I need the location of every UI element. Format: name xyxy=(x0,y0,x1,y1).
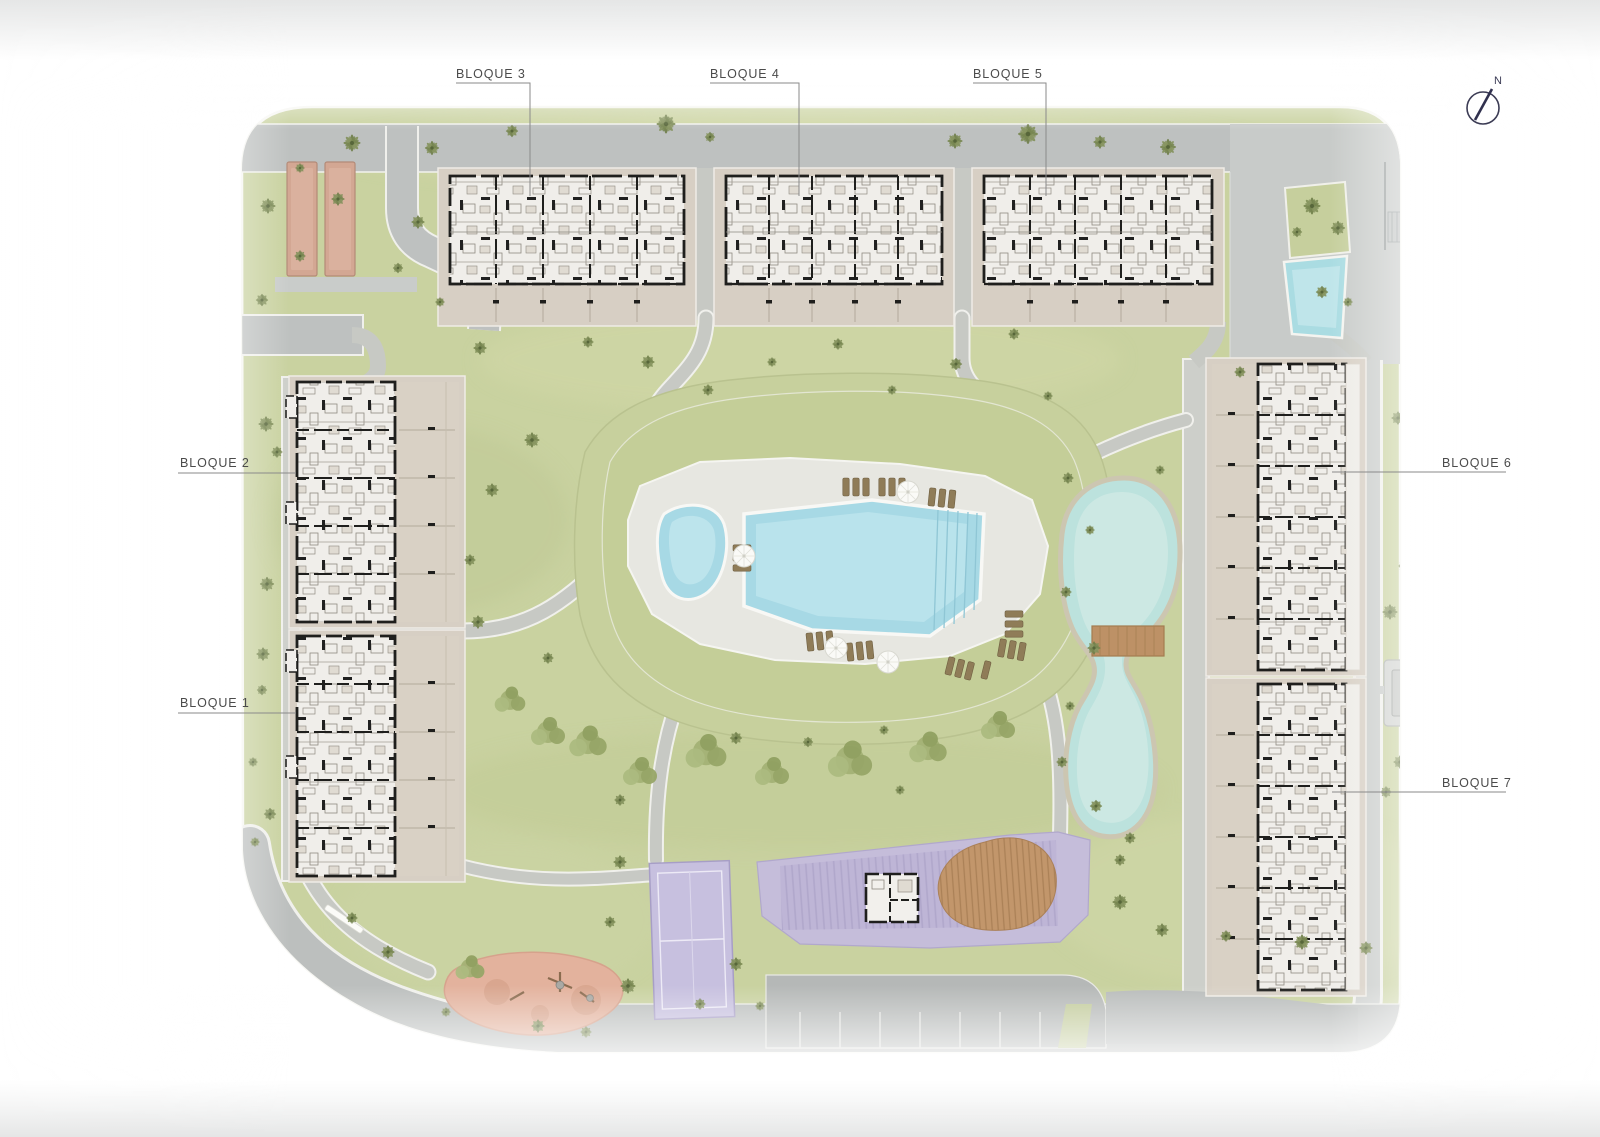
north-label: N xyxy=(1494,75,1502,87)
label-bloque-4: BLOQUE 4 xyxy=(710,67,780,81)
building-bloque-5 xyxy=(972,168,1224,326)
label-bloque-2: BLOQUE 2 xyxy=(180,456,250,470)
building-bloque-3 xyxy=(438,168,696,326)
building-bloque-4 xyxy=(714,168,954,326)
lake-bridge xyxy=(1092,626,1164,656)
facility-building xyxy=(866,874,918,922)
label-bloque-5: BLOQUE 5 xyxy=(973,67,1043,81)
label-bloque-1: BLOQUE 1 xyxy=(180,696,250,710)
label-bloque-6: BLOQUE 6 xyxy=(1442,456,1512,470)
site-plan-canvas: BLOQUE 3 BLOQUE 4 BLOQUE 5 BLOQUE 2 BLOQ… xyxy=(0,0,1600,1137)
label-bloque-7: BLOQUE 7 xyxy=(1442,776,1512,790)
label-bloque-3: BLOQUE 3 xyxy=(456,67,526,81)
building-bloque-1 xyxy=(286,630,465,882)
building-bloque-2 xyxy=(286,376,465,628)
